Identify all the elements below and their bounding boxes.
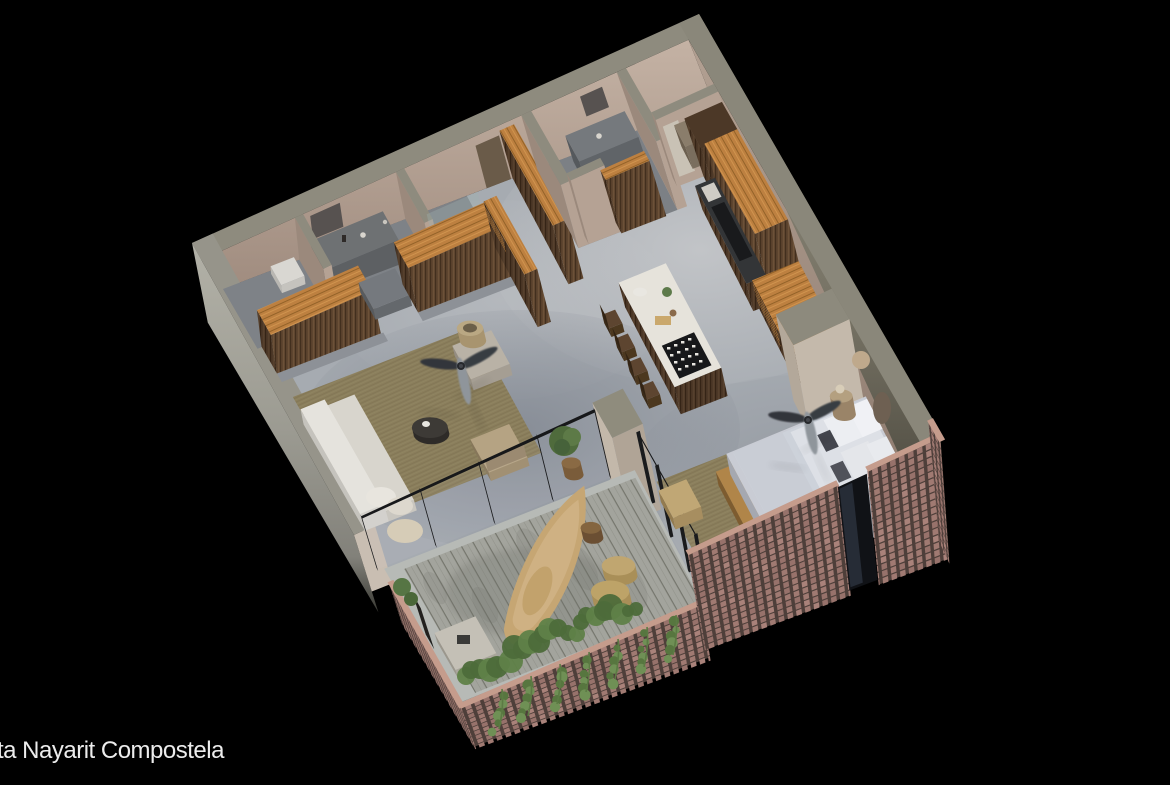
svg-text:ta Nayarit Compostela: ta Nayarit Compostela <box>0 737 225 764</box>
